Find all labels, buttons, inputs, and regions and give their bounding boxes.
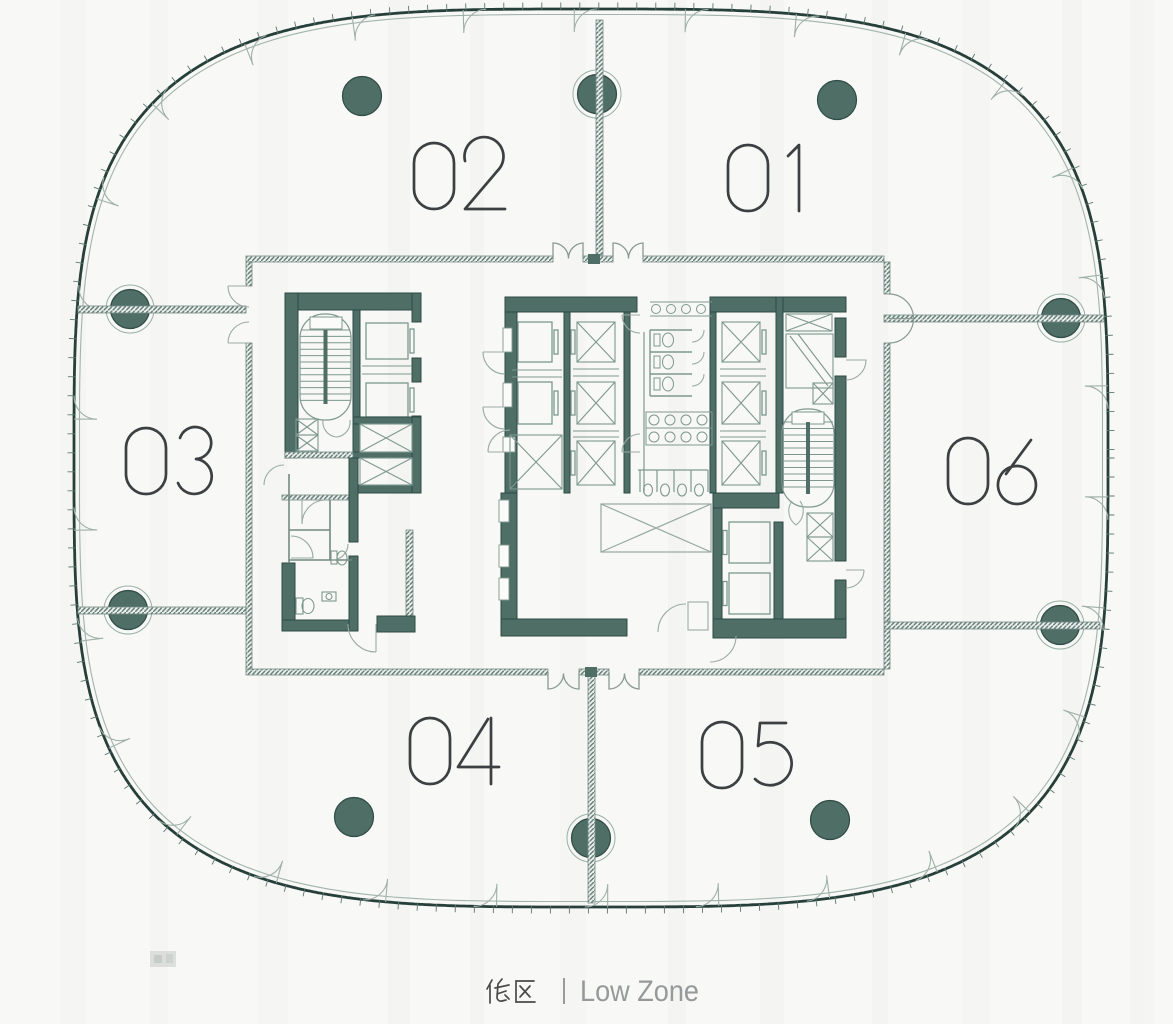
svg-text:Low Zone: Low Zone — [580, 975, 699, 1008]
